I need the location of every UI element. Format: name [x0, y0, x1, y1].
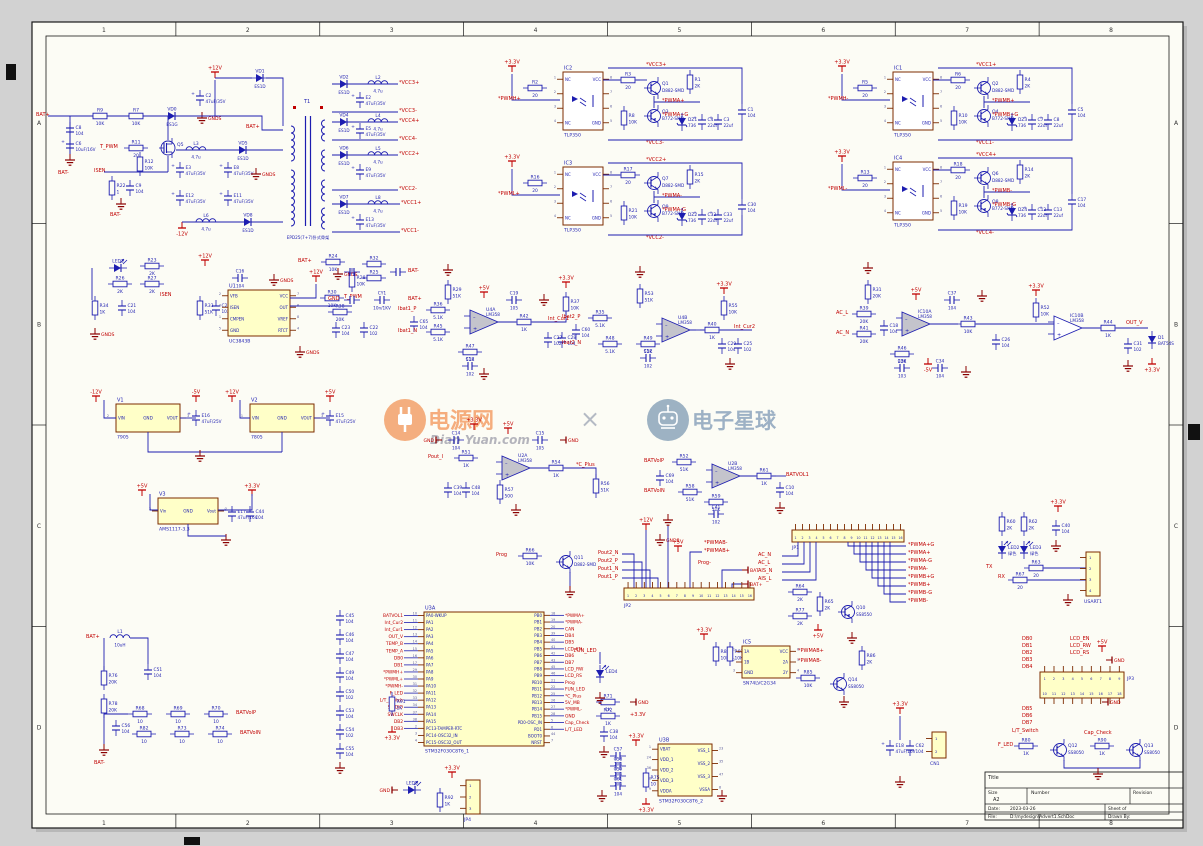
svg-text:Pout1_N: Pout1_N: [598, 566, 619, 572]
n-bat-: BAT-: [110, 212, 121, 218]
n-bat+: BAT+: [298, 258, 312, 264]
svg-text:1K: 1K: [463, 463, 469, 469]
svg-text:2: 2: [107, 414, 109, 418]
svg-text:T_PWM: T_PWM: [343, 294, 362, 300]
svg-text:1: 1: [102, 27, 106, 34]
svg-text:R47: R47: [465, 344, 474, 350]
svg-text:GND: GND: [328, 296, 340, 302]
svg-text:R61: R61: [759, 468, 768, 474]
svg-text:+: +: [321, 411, 325, 417]
svg-text:3: 3: [390, 27, 394, 34]
svg-text:BAT+: BAT+: [408, 296, 422, 302]
svg-text:104: 104: [786, 491, 794, 496]
svg-text:1K: 1K: [445, 802, 451, 808]
svg-text:51K: 51K: [645, 298, 654, 304]
n-db0: DB0: [1022, 636, 1032, 642]
svg-text:10K: 10K: [729, 310, 738, 316]
n-ais_n: AIS_N: [758, 568, 773, 574]
svg-text:VCC: VCC: [923, 77, 932, 82]
svg-text:IC3: IC3: [564, 161, 572, 167]
svg-text:R5: R5: [862, 80, 868, 86]
n-*pwml-: *PWML-: [828, 186, 847, 192]
svg-text:GND: GND: [230, 328, 239, 333]
svg-text:13: 13: [413, 633, 417, 637]
svg-text:R1: R1: [695, 77, 701, 83]
svg-text:+: +: [473, 327, 477, 333]
svg-text:PB12: PB12: [532, 693, 543, 698]
svg-text:L/T_Switch: L/T_Switch: [1012, 728, 1039, 734]
svg-text:4: 4: [534, 27, 538, 34]
svg-text:1K: 1K: [1023, 751, 1029, 757]
svg-text:PA13: PA13: [426, 705, 436, 710]
svg-text:Q10: Q10: [856, 605, 866, 611]
svg-text:45: 45: [551, 665, 555, 669]
svg-text:PB3: PB3: [534, 633, 542, 638]
svg-text:R31: R31: [873, 287, 882, 293]
svg-text:ISEN: ISEN: [160, 292, 172, 298]
svg-text:32: 32: [413, 689, 417, 693]
svg-text:LM358: LM358: [1070, 318, 1084, 323]
svg-text:47uF/25V: 47uF/25V: [202, 419, 222, 424]
svg-text:Date:: Date:: [988, 806, 1000, 812]
svg-text:Prog: Prog: [496, 552, 507, 558]
u-u3b: U3BSTM32F030C8T6_21VBAT24VDD_136VDD_248V…: [647, 738, 724, 805]
svg-text:PB11: PB11: [532, 687, 543, 692]
svg-text:AC_N: AC_N: [836, 330, 849, 336]
svg-text:104: 104: [936, 374, 944, 379]
svg-text:15: 15: [413, 647, 417, 651]
n-pout1_p: Pout1_P: [598, 574, 618, 580]
svg-text:VD4: VD4: [339, 113, 348, 119]
svg-text:ES1D: ES1D: [338, 128, 349, 133]
svg-text:1K: 1K: [761, 481, 767, 487]
svg-text:4: 4: [884, 119, 886, 123]
n-pout_i: Pout_I: [428, 454, 443, 460]
svg-text:PB2: PB2: [534, 626, 542, 631]
svg-text:104: 104: [76, 131, 84, 136]
svg-text:C: C: [1174, 523, 1178, 530]
svg-text:C14: C14: [452, 431, 461, 437]
svg-text:42: 42: [551, 652, 555, 656]
n-ibat2_p: Ibat2_P: [562, 314, 580, 320]
svg-text:R32: R32: [369, 256, 378, 262]
svg-text:1A: 1A: [744, 649, 750, 654]
svg-text:6: 6: [551, 725, 553, 729]
svg-text:R9: R9: [97, 108, 103, 114]
svg-text:*PWMB+: *PWMB+: [908, 582, 930, 588]
svg-text:C52: C52: [644, 349, 653, 355]
svg-text:+3.3V: +3.3V: [444, 766, 460, 772]
svg-text:24: 24: [647, 756, 651, 760]
svg-text:PB9: PB9: [534, 673, 542, 678]
svg-text:R74: R74: [215, 726, 224, 732]
svg-text:34: 34: [413, 703, 417, 707]
svg-text:14: 14: [413, 640, 417, 644]
svg-text:DB0: DB0: [394, 655, 403, 661]
svg-text:*PWMH-: *PWMH-: [828, 96, 849, 102]
svg-text:R62: R62: [1029, 519, 1038, 525]
svg-text:LED5: LED5: [406, 781, 418, 787]
svg-text:4.7u: 4.7u: [373, 89, 383, 94]
svg-text:V2: V2: [251, 398, 258, 404]
svg-text:+3.3V: +3.3V: [892, 702, 908, 708]
svg-text:DB4: DB4: [1022, 664, 1032, 670]
svg-text:47uF/35V: 47uF/35V: [186, 199, 206, 204]
svg-text:*PWML-: *PWML-: [565, 707, 582, 713]
svg-text:6: 6: [668, 594, 670, 598]
svg-text:3: 3: [733, 669, 735, 673]
n-batvolp: BATVolP: [644, 458, 664, 464]
svg-text:1: 1: [241, 414, 243, 418]
svg-text:12: 12: [1061, 692, 1065, 696]
svg-text:-12V: -12V: [90, 390, 102, 396]
svg-text:1: 1: [733, 647, 735, 651]
svg-text:47uF/35V: 47uF/35V: [206, 99, 226, 104]
n-*pwma-g: *PWMA-G: [662, 207, 686, 213]
svg-text:PC14-OSC32_IN: PC14-OSC32_IN: [426, 733, 458, 738]
svg-text:NC: NC: [565, 172, 571, 177]
svg-text:*VCC4+: *VCC4+: [976, 152, 996, 158]
svg-text:VD0: VD0: [167, 107, 176, 113]
svg-text:4.7u: 4.7u: [373, 160, 383, 165]
n-*vcc2-: *VCC2-: [399, 186, 417, 192]
svg-text:20K: 20K: [109, 708, 118, 714]
svg-text:Prog: Prog: [565, 680, 575, 686]
svg-text:10: 10: [179, 739, 185, 745]
svg-text:GND: GND: [1114, 658, 1125, 664]
svg-text:31: 31: [413, 682, 417, 686]
svg-text:File:: File:: [988, 814, 997, 820]
svg-text:电源网: 电源网: [428, 409, 494, 434]
svg-text:104: 104: [236, 284, 244, 289]
svg-text:R17: R17: [623, 167, 632, 173]
svg-text:Ibat1_N: Ibat1_N: [398, 328, 417, 334]
svg-text:R85: R85: [803, 670, 812, 676]
svg-text:10K: 10K: [964, 329, 973, 335]
n-bat+: BAT+: [86, 634, 100, 640]
n-db5: DB5: [1022, 706, 1032, 712]
svg-text:+: +: [61, 139, 65, 145]
svg-text:Pout2_N: Pout2_N: [598, 550, 619, 556]
svg-text:D: D: [37, 724, 42, 731]
svg-text:JP3: JP3: [1126, 676, 1134, 682]
svg-text:+12V: +12V: [639, 518, 654, 524]
svg-text:*PWMB-: *PWMB-: [908, 598, 928, 604]
n-bat-: BAT-: [94, 760, 105, 766]
n-ac_l: AC_L: [758, 560, 770, 566]
svg-text:VCC: VCC: [923, 167, 932, 172]
n-*pwmb-g: *PWMB-G: [908, 590, 932, 596]
svg-text:7: 7: [940, 180, 942, 184]
dianyuan-logo-icon: [384, 399, 426, 441]
svg-text:CAN: CAN: [565, 626, 574, 632]
svg-text:Dian Yuan.com: Dian Yuan.com: [430, 433, 530, 447]
svg-text:*PWMA-: *PWMA-: [908, 566, 928, 572]
svg-text:+3.3V: +3.3V: [504, 155, 520, 161]
svg-text:IC4: IC4: [894, 156, 902, 162]
svg-text:22uf: 22uf: [724, 218, 734, 223]
svg-text:22: 22: [551, 685, 555, 689]
svg-text:R67: R67: [1015, 572, 1024, 578]
svg-text:R8: R8: [629, 113, 635, 119]
svg-text:R78: R78: [109, 701, 118, 707]
svg-text:1K: 1K: [709, 335, 715, 341]
svg-text:+: +: [715, 481, 719, 487]
svg-text:16: 16: [898, 536, 902, 540]
svg-text:NC: NC: [895, 120, 901, 125]
svg-text:+: +: [1023, 115, 1027, 121]
svg-text:1K: 1K: [521, 327, 527, 333]
svg-text:Q7: Q7: [662, 176, 669, 182]
svg-text:20: 20: [1033, 573, 1039, 579]
svg-text:Vout: Vout: [207, 509, 216, 514]
svg-text:R35: R35: [595, 310, 604, 316]
svg-text:BATVolP: BATVolP: [236, 710, 256, 716]
svg-text:8: 8: [610, 75, 612, 79]
svg-text:+: +: [709, 115, 713, 121]
svg-text:10: 10: [856, 536, 860, 540]
svg-text:BAT+: BAT+: [246, 124, 260, 130]
svg-text:104: 104: [452, 446, 460, 451]
svg-text:+: +: [709, 210, 713, 216]
svg-text:2K: 2K: [797, 597, 803, 603]
svg-text:47uF/35V: 47uF/35V: [366, 223, 386, 228]
svg-text:R92: R92: [445, 795, 454, 801]
u-ic4: IC4TLP3501NC234NC8VCC765GND: [884, 156, 942, 229]
svg-text:PC15-OSC32_OUT: PC15-OSC32_OUT: [426, 740, 462, 745]
svg-text:DB0: DB0: [1022, 636, 1032, 642]
svg-text:10K: 10K: [959, 210, 968, 216]
svg-text:102: 102: [1134, 347, 1142, 352]
svg-text:5: 5: [940, 119, 942, 123]
svg-text:STM32F030C8T6_1: STM32F030C8T6_1: [425, 749, 469, 755]
svg-text:VOUT: VOUT: [167, 416, 179, 421]
svg-text:20: 20: [862, 183, 868, 189]
svg-text:PB5: PB5: [534, 646, 542, 651]
svg-text:7: 7: [551, 739, 553, 743]
svg-text:4: 4: [554, 214, 556, 218]
svg-text:10K: 10K: [571, 306, 580, 312]
svg-text:*PWMB+G: *PWMB+G: [992, 112, 1018, 118]
n-fun_led: FUN_LED: [574, 648, 597, 654]
svg-text:VD6: VD6: [339, 146, 348, 152]
svg-text:AMS1117-3.3: AMS1117-3.3: [159, 527, 190, 533]
svg-text:-5V: -5V: [924, 368, 933, 374]
svg-text:VDDA: VDDA: [660, 788, 672, 793]
dianzixingqiu-logo-icon: [647, 399, 689, 441]
svg-text:2: 2: [635, 594, 637, 598]
svg-text:*VCC2+: *VCC2+: [646, 157, 666, 163]
svg-text:104: 104: [122, 729, 130, 734]
svg-text:R34: R34: [100, 303, 109, 309]
svg-text:2K: 2K: [797, 621, 803, 627]
svg-text:GNDS: GNDS: [306, 350, 320, 356]
svg-text:6: 6: [829, 536, 831, 540]
svg-text:C13: C13: [466, 357, 475, 363]
svg-text:+: +: [693, 115, 697, 121]
n-batvoln: BATVolN: [240, 730, 261, 736]
svg-text:2K: 2K: [867, 660, 873, 666]
svg-text:-5V: -5V: [192, 390, 201, 396]
svg-text:15: 15: [891, 536, 895, 540]
svg-text:GND: GND: [1110, 700, 1121, 706]
svg-text:+: +: [351, 215, 355, 221]
svg-text:8: 8: [1109, 677, 1111, 681]
svg-text:+: +: [1039, 205, 1043, 211]
n-*pwmab-: *PWMAB-: [704, 540, 728, 546]
n-*pwmab+: *PWMAB+: [704, 548, 730, 554]
svg-text:VD1: VD1: [255, 69, 264, 75]
svg-text:51K: 51K: [601, 488, 610, 494]
svg-text:R24: R24: [328, 254, 337, 260]
svg-text:5.1K: 5.1K: [595, 323, 605, 329]
svg-text:ISEN: ISEN: [230, 305, 239, 310]
svg-text:104: 104: [346, 638, 354, 643]
n-*pwmh+: *PWMH+: [498, 96, 521, 102]
svg-text:104: 104: [614, 792, 622, 797]
svg-text:GND: GND: [277, 416, 287, 421]
svg-text:16: 16: [413, 654, 417, 658]
svg-text:105: 105: [536, 446, 544, 451]
svg-text:104: 104: [128, 309, 136, 314]
svg-text:R30: R30: [327, 290, 336, 296]
n-f_led: F_LED: [998, 742, 1013, 748]
svg-text:102: 102: [466, 372, 474, 377]
svg-text:29: 29: [413, 668, 417, 672]
u-ic1: IC1TLP3501NC234NC8VCC765GND: [884, 66, 942, 139]
svg-text:GNDS: GNDS: [262, 172, 276, 178]
svg-text:5: 5: [822, 536, 824, 540]
svg-text:C58: C58: [614, 757, 623, 763]
n-l-t_switch: L/T_Switch: [1012, 728, 1039, 734]
svg-text:OUT: OUT: [279, 305, 288, 310]
svg-text:2K: 2K: [695, 84, 701, 90]
svg-text:BATVolP: BATVolP: [644, 458, 664, 464]
svg-text:20K: 20K: [873, 294, 882, 300]
svg-text:10K: 10K: [1041, 312, 1050, 318]
svg-text:5: 5: [660, 594, 662, 598]
svg-text:VDD_3: VDD_3: [660, 778, 674, 783]
svg-text:3: 3: [554, 104, 556, 108]
svg-text:BAT+: BAT+: [298, 258, 312, 264]
svg-text:V1: V1: [117, 398, 124, 404]
svg-text:PA7: PA7: [426, 662, 434, 667]
svg-text:9: 9: [692, 594, 694, 598]
svg-text:+: +: [905, 329, 909, 335]
svg-text:+5V: +5V: [1097, 640, 1108, 646]
svg-text:37: 37: [413, 710, 417, 714]
n-db6: DB6: [1022, 713, 1032, 719]
svg-text:VSS_2: VSS_2: [698, 761, 711, 766]
svg-text:12: 12: [870, 536, 874, 540]
n-db3: DB3: [1022, 657, 1032, 663]
svg-text:6: 6: [297, 303, 299, 307]
svg-text:26: 26: [551, 698, 555, 702]
svg-text:GND: GND: [379, 788, 390, 794]
svg-text:10K: 10K: [629, 120, 638, 126]
svg-text:×: ×: [580, 405, 600, 433]
svg-text:TX: TX: [985, 564, 993, 570]
svg-text:R19: R19: [959, 203, 968, 209]
svg-text:PA4: PA4: [426, 641, 434, 646]
svg-text:VBAT: VBAT: [660, 747, 671, 752]
n-t_pwm: T_PWM: [99, 144, 118, 150]
svg-text:3: 3: [884, 104, 886, 108]
svg-text:*VCC3+: *VCC3+: [399, 80, 419, 86]
svg-text:1: 1: [554, 75, 556, 79]
svg-text:R45: R45: [433, 324, 442, 330]
svg-text:AC_N: AC_N: [758, 552, 771, 558]
svg-text:GND: GND: [922, 120, 931, 125]
n-lcd_en: LCD_EN: [1070, 636, 1090, 642]
svg-text:*VCC3+: *VCC3+: [646, 62, 666, 68]
n-db2: DB2: [1022, 650, 1032, 656]
svg-text:*PWMB-: *PWMB-: [992, 188, 1012, 194]
svg-text:4: 4: [815, 536, 817, 540]
svg-text:1: 1: [884, 75, 886, 79]
svg-text:D882-SMD: D882-SMD: [574, 562, 596, 567]
svg-text:R13: R13: [860, 170, 869, 176]
svg-text:R91: R91: [397, 699, 406, 705]
n-*pwma+: *PWMA+: [662, 98, 684, 104]
svg-text:20K: 20K: [109, 680, 118, 686]
svg-text:+: +: [665, 335, 669, 341]
svg-text:104: 104: [1002, 343, 1010, 348]
n-*c_plus: *C_Plus: [576, 462, 595, 468]
svg-text:8: 8: [940, 165, 942, 169]
svg-text:20: 20: [862, 93, 868, 99]
svg-text:104: 104: [1078, 113, 1086, 118]
svg-text:1K: 1K: [1105, 333, 1111, 339]
svg-text:R63: R63: [1031, 560, 1040, 566]
svg-text:+3.3V: +3.3V: [716, 282, 732, 288]
svg-text:VIN: VIN: [252, 416, 259, 421]
svg-text:VSSA: VSSA: [699, 787, 710, 792]
svg-text:R77: R77: [795, 608, 804, 614]
svg-text:10K: 10K: [96, 121, 105, 127]
svg-text:*PWMA-G: *PWMA-G: [908, 558, 932, 564]
svg-text:43: 43: [551, 658, 555, 662]
svg-text:3: 3: [643, 594, 645, 598]
n-bat+: BAT+: [408, 296, 422, 302]
svg-text:VOUT: VOUT: [301, 416, 313, 421]
svg-text:SN74LVC2G34: SN74LVC2G34: [743, 681, 776, 687]
svg-text:L8: L8: [375, 195, 380, 201]
svg-text:+12V: +12V: [198, 254, 213, 260]
svg-text:R75: R75: [651, 775, 660, 781]
svg-text:Cap_Check: Cap_Check: [565, 720, 590, 726]
svg-text:22uf: 22uf: [724, 123, 734, 128]
svg-text:R76: R76: [109, 673, 118, 679]
n-bat-: BAT-: [408, 268, 419, 274]
svg-text:PA12: PA12: [426, 698, 436, 703]
svg-text:GND: GND: [143, 416, 153, 421]
svg-text:*VCC4-: *VCC4-: [399, 136, 417, 142]
svg-text:LCD_RS: LCD_RS: [1070, 650, 1089, 656]
n-*pwma+: *PWMA+: [908, 550, 930, 556]
svg-text:R44: R44: [1103, 320, 1112, 326]
svg-text:R69: R69: [173, 706, 182, 712]
svg-text:VD8: VD8: [243, 213, 252, 219]
svg-text:1: 1: [117, 190, 120, 196]
svg-text:PA5: PA5: [426, 648, 434, 653]
n-*pwmb+: *PWMB+: [992, 98, 1014, 104]
svg-text:C41: C41: [712, 505, 721, 511]
svg-text:10K: 10K: [629, 215, 638, 221]
svg-text:R40: R40: [707, 322, 716, 328]
svg-text:5: 5: [1081, 677, 1083, 681]
svg-text:7: 7: [1100, 677, 1102, 681]
